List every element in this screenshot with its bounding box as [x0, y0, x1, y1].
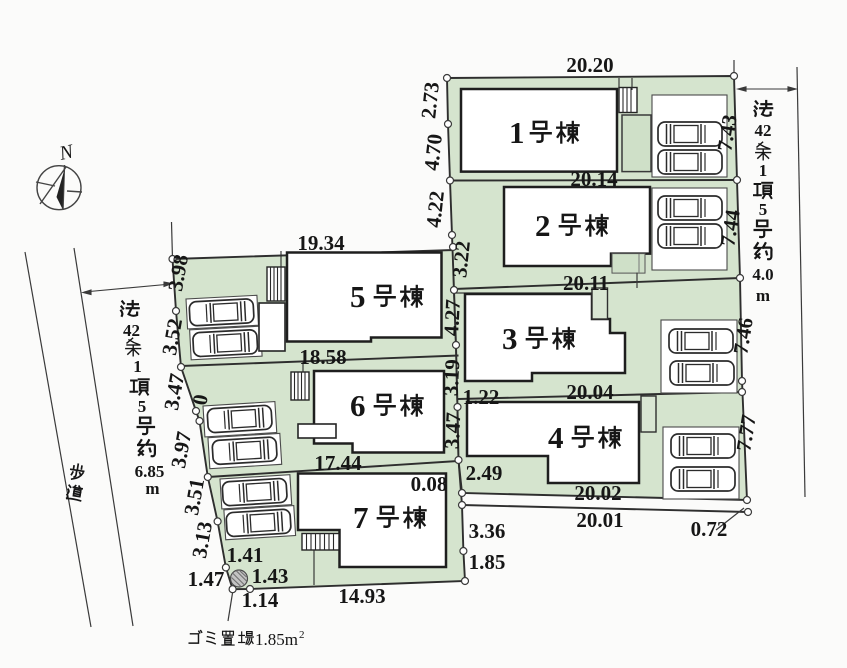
svg-text:5: 5: [759, 200, 768, 219]
svg-text:4.70: 4.70: [419, 133, 447, 172]
svg-text:2.49: 2.49: [466, 461, 503, 485]
svg-text:20.11: 20.11: [563, 271, 609, 295]
svg-text:3: 3: [502, 321, 518, 356]
svg-text:6: 6: [350, 388, 366, 423]
svg-text:2.73: 2.73: [416, 81, 444, 120]
svg-text:0.72: 0.72: [691, 517, 728, 541]
svg-text:2: 2: [535, 208, 551, 243]
svg-text:20.20: 20.20: [566, 53, 613, 77]
svg-text:20.14: 20.14: [570, 167, 618, 191]
svg-text:19.34: 19.34: [297, 231, 345, 255]
svg-text:1: 1: [133, 357, 142, 376]
svg-text:1.85m: 1.85m: [255, 630, 298, 649]
svg-text:3.47: 3.47: [440, 412, 466, 450]
svg-text:20.02: 20.02: [574, 481, 621, 505]
svg-text:1.85: 1.85: [469, 550, 506, 574]
svg-text:1.47: 1.47: [188, 567, 225, 591]
svg-text:3.36: 3.36: [469, 519, 506, 543]
svg-text:4.0: 4.0: [752, 265, 773, 284]
svg-text:4: 4: [548, 420, 564, 455]
svg-text:m: m: [756, 286, 770, 305]
svg-text:14.93: 14.93: [338, 584, 385, 608]
svg-text:3.22: 3.22: [447, 240, 475, 279]
svg-text:42: 42: [755, 121, 772, 140]
svg-text:1.43: 1.43: [252, 564, 289, 588]
svg-text:20.04: 20.04: [566, 380, 614, 404]
svg-text:3.19: 3.19: [439, 359, 465, 397]
svg-text:m: m: [145, 479, 159, 498]
svg-text:4.27: 4.27: [439, 299, 465, 337]
svg-text:5: 5: [138, 397, 147, 416]
svg-text:42: 42: [123, 321, 140, 340]
svg-text:1: 1: [509, 115, 525, 150]
svg-text:17.44: 17.44: [314, 451, 362, 475]
svg-text:1.22: 1.22: [463, 385, 500, 409]
svg-text:4.22: 4.22: [421, 190, 449, 229]
svg-text:0.08: 0.08: [411, 472, 448, 496]
svg-text:1.14: 1.14: [242, 588, 279, 612]
svg-text:7: 7: [353, 500, 369, 535]
svg-text:5: 5: [350, 279, 366, 314]
svg-text:18.58: 18.58: [299, 345, 346, 369]
svg-text:1: 1: [759, 161, 768, 180]
svg-text:20.01: 20.01: [576, 508, 623, 532]
svg-text:2: 2: [299, 629, 305, 641]
